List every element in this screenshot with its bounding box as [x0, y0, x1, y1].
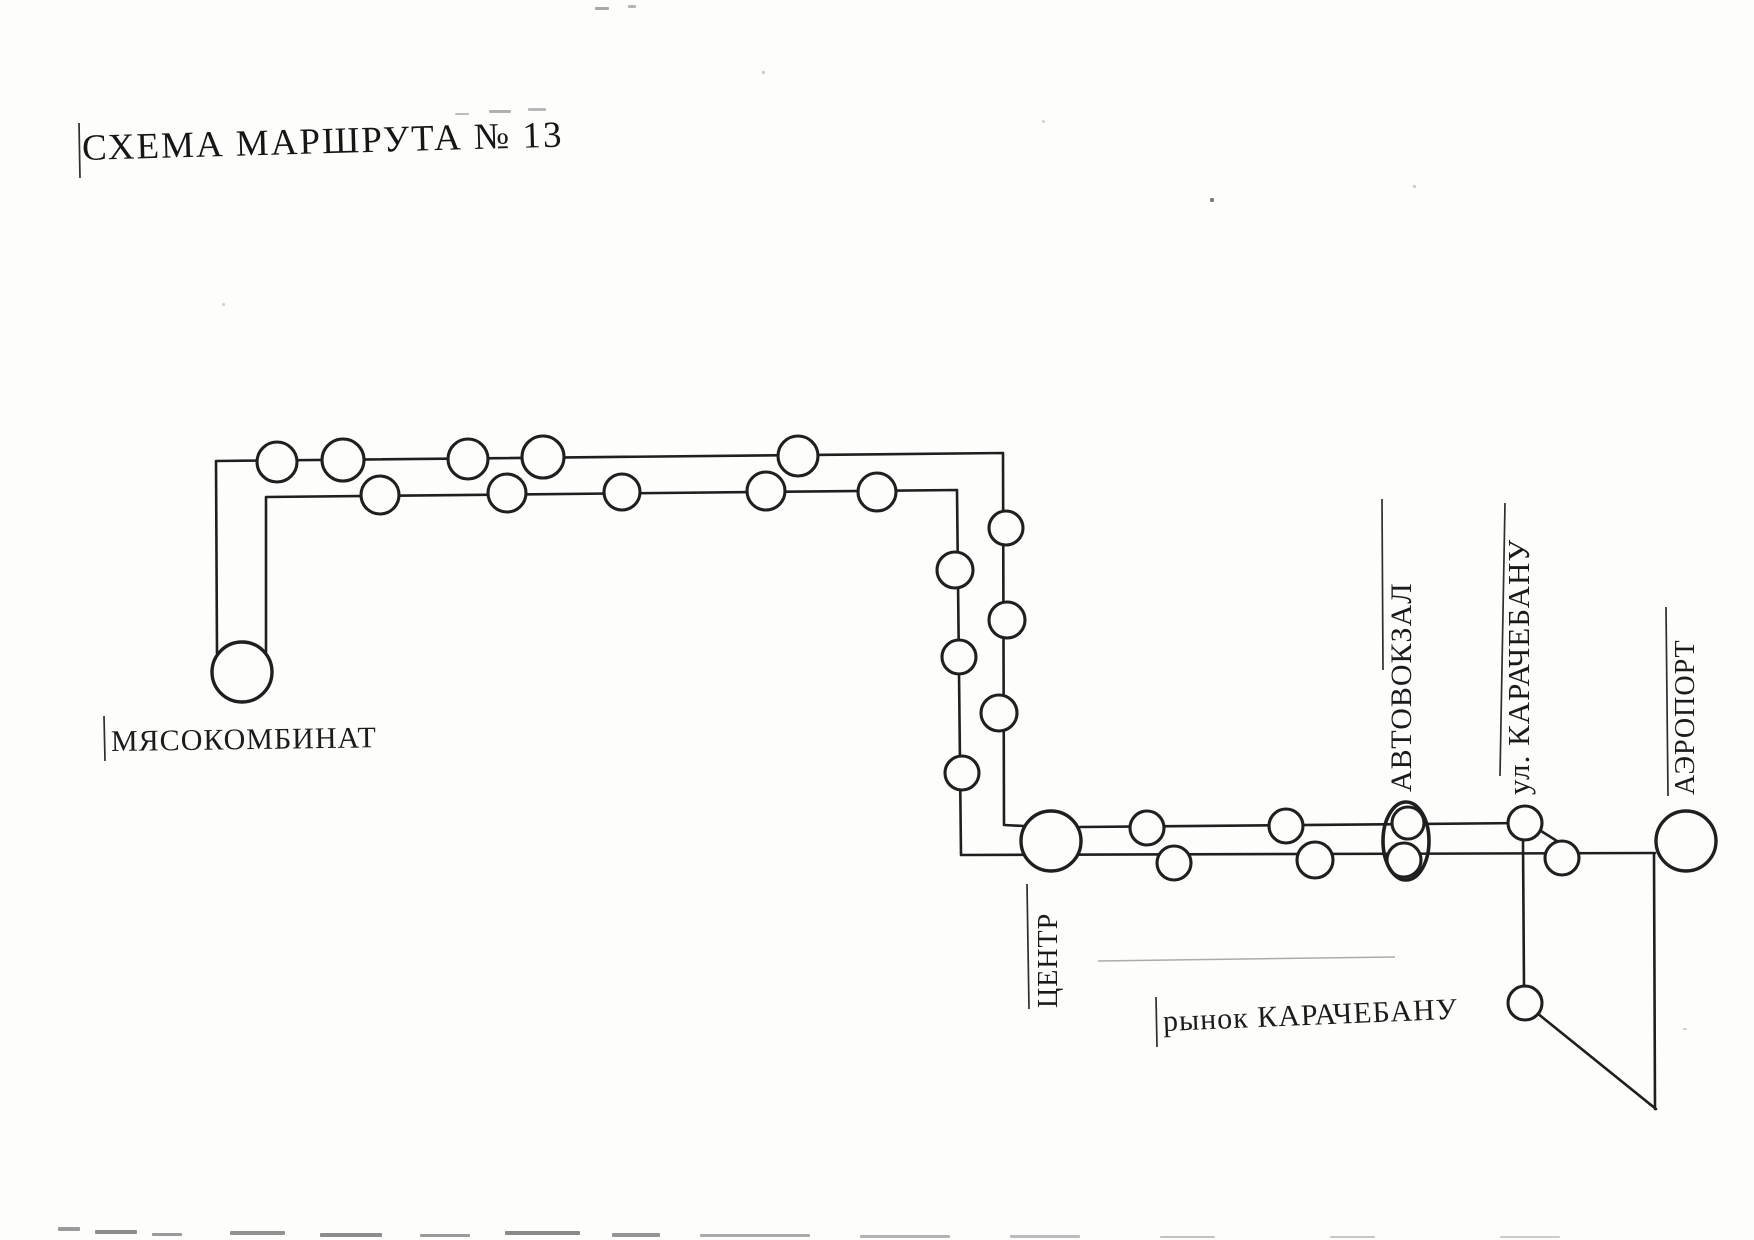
stop-circle: [1157, 846, 1191, 880]
scan-artifact: [628, 5, 636, 8]
stop-label-centr: ЦЕНТР: [1035, 913, 1063, 1008]
terminal-stop-circle: [212, 642, 272, 702]
scan-artifact: [700, 1234, 810, 1237]
stop-circle: [945, 756, 979, 790]
stop-circle: [1130, 811, 1164, 845]
stop-circle: [989, 602, 1025, 638]
scan-artifact: [612, 1233, 660, 1237]
stop-circle: [361, 476, 399, 514]
title-tick: [79, 123, 80, 178]
scan-artifact: [455, 113, 469, 115]
aeroport-label-line: [1666, 607, 1668, 796]
rynok-tick: [1156, 997, 1157, 1047]
scan-artifact: [505, 1231, 580, 1235]
market-diagonal-line: [1537, 1013, 1656, 1109]
stop-label-avtovokzal: АВТОВОКЗАЛ: [1387, 582, 1417, 792]
scan-artifact: [1500, 1236, 1560, 1238]
route-diagram: [0, 0, 1754, 1240]
terminal-stop-circle: [1656, 811, 1716, 871]
stop-circle: [942, 640, 976, 674]
airport-branch-line: [1654, 854, 1655, 1109]
scan-artifact: [222, 303, 225, 306]
stop-circle: [1297, 842, 1333, 878]
scan-artifact: [152, 1233, 182, 1236]
stop-circle: [322, 439, 364, 481]
stop-circle: [989, 511, 1023, 545]
scanned-route-map-page: СХЕМА МАРШРУТА № 13 МЯСОКОМБИНАТ ЦЕНТР А…: [0, 0, 1754, 1240]
stop-label-ul-karachebanu: ул. КАРАЧЕБАНУ: [1503, 539, 1534, 795]
scan-artifact: [1042, 120, 1045, 123]
terminal-stop-circle: [1021, 811, 1081, 871]
myasokombinat-tick: [104, 716, 105, 761]
centr-label-line: [1027, 884, 1029, 1009]
stop-circle: [448, 439, 488, 479]
stop-circle: [747, 472, 785, 510]
scan-artifact: [58, 1227, 80, 1231]
stop-circle: [778, 436, 818, 476]
stop-circle: [937, 552, 973, 588]
market-branch-line: [1523, 841, 1524, 986]
stop-label-aeroport: АЭРОПОРТ: [1672, 639, 1700, 795]
scan-artifact: [95, 1230, 137, 1234]
scan-artifact: [230, 1231, 285, 1235]
stop-circle: [981, 695, 1017, 731]
scan-artifact: [860, 1235, 950, 1238]
scan-artifact: [320, 1233, 382, 1237]
scan-artifact: [420, 1234, 470, 1237]
stop-circle: [1545, 841, 1579, 875]
stop-circle: [858, 473, 896, 511]
stop-circle: [604, 474, 640, 510]
scan-artifact: [528, 108, 546, 111]
scan-artifact: [1160, 1236, 1215, 1238]
scan-artifact: [1330, 1236, 1375, 1238]
stop-circle: [488, 474, 526, 512]
stop-label-myasokombinat: МЯСОКОМБИНАТ: [111, 723, 377, 757]
scan-artifact: [1210, 198, 1214, 202]
scan-artifact: [595, 7, 609, 10]
avtovokzal-label-line: [1382, 499, 1383, 670]
scan-artifact: [1413, 185, 1416, 188]
stop-circle: [1269, 809, 1303, 843]
faint-artifact-line: [1098, 957, 1395, 961]
stop-circle: [1508, 986, 1542, 1020]
stop-circle: [257, 442, 297, 482]
scan-artifact: [1683, 1028, 1687, 1030]
scan-artifact: [1010, 1235, 1080, 1238]
scan-artifact: [762, 71, 765, 74]
scan-artifact: [489, 110, 511, 113]
stop-circle: [1508, 806, 1542, 840]
stop-circle: [522, 436, 564, 478]
